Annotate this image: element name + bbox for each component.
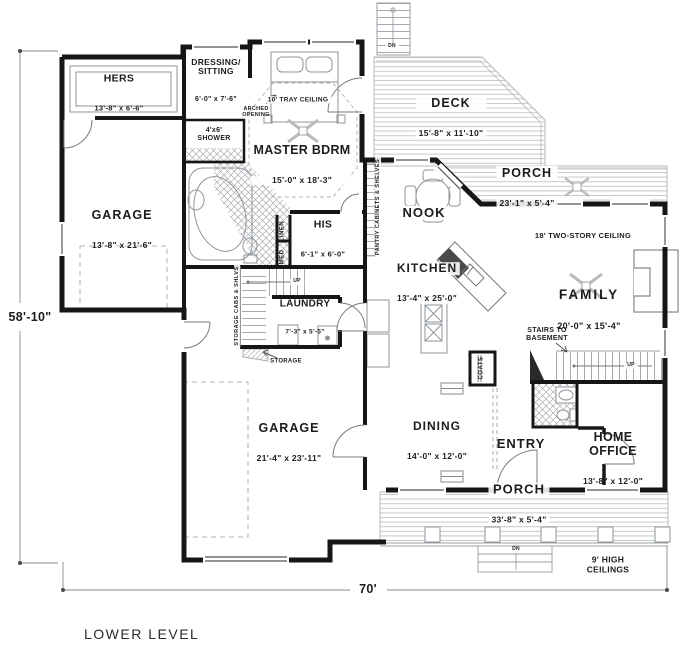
room-label-dining: DINING 14'-0" x 12'-0" [407,402,467,480]
note-coats: COATS [479,356,486,379]
note-med: MED [280,250,287,265]
room-label-rear-porch: PORCH 23'-1" x 5'-4" [496,148,557,226]
room-label-hers: HERS 13'-8" x 6'-6" [94,56,143,131]
overall-depth-dimension: 58'-10" [6,310,55,324]
room-label-nook: NOOK [400,188,449,238]
note-stairs-basement: STAIRS TO BASEMENT [526,327,568,343]
note-dn-deck-stairs: DN [385,44,399,50]
room-label-front-porch: PORCH 33'-8" x 5'-4" [488,465,549,544]
overall-width-dimension: 70' [356,582,380,596]
note-pantry: PANTRY CABINETS & SHELVES [375,157,381,257]
room-label-dressing: DRESSING/ SITTING 6'-0" x 7'-6" [191,40,240,122]
room-label-deck: DECK 15'-8" x 11'-10" [416,78,487,156]
room-label-laundry: LAUNDRY 7'-3" x 5'-5" [280,280,331,353]
note-shower: 4'x6' SHOWER [197,127,230,143]
room-label-entry: ENTRY [497,419,546,469]
floor-plan-page: HERS 13'-8" x 6'-6" DRESSING/ SITTING 6'… [0,0,686,664]
note-storage: STORAGE [270,359,302,366]
note-storage-cabs: STORAGE CABS & SHLVS [234,264,240,347]
room-label-his: HIS 6'-1" x 6'-0" [301,202,346,277]
room-label-master: MASTER BDRM 15'-0" x 18'-3" [250,125,353,203]
note-tray-ceiling: 10' TRAY CEILING [265,96,332,103]
plan-title: LOWER LEVEL [84,626,199,642]
room-label-garage-upper: GARAGE 13'-8" x 21'-6" [92,190,153,268]
note-dn-porch-steps: DN [509,547,523,553]
note-up-center-stairs: UP [290,279,304,285]
room-label-home-office: HOME OFFICE 13'-8" x 12'-0" [577,412,650,504]
note-linen: LINEN [280,221,287,242]
room-label-garage-lower: GARAGE 21'-4" x 23'-11" [257,403,322,481]
note-arched-opening: ARCHED OPENING [242,106,269,118]
note-two-story-ceiling: 18' TWO-STORY CEILING [535,232,631,240]
note-high-ceilings: 9' HIGH CEILINGS [587,555,630,574]
note-up-family-stairs: UP [624,363,638,369]
room-label-kitchen: KITCHEN 13'-4" x 25'-0" [394,244,460,322]
